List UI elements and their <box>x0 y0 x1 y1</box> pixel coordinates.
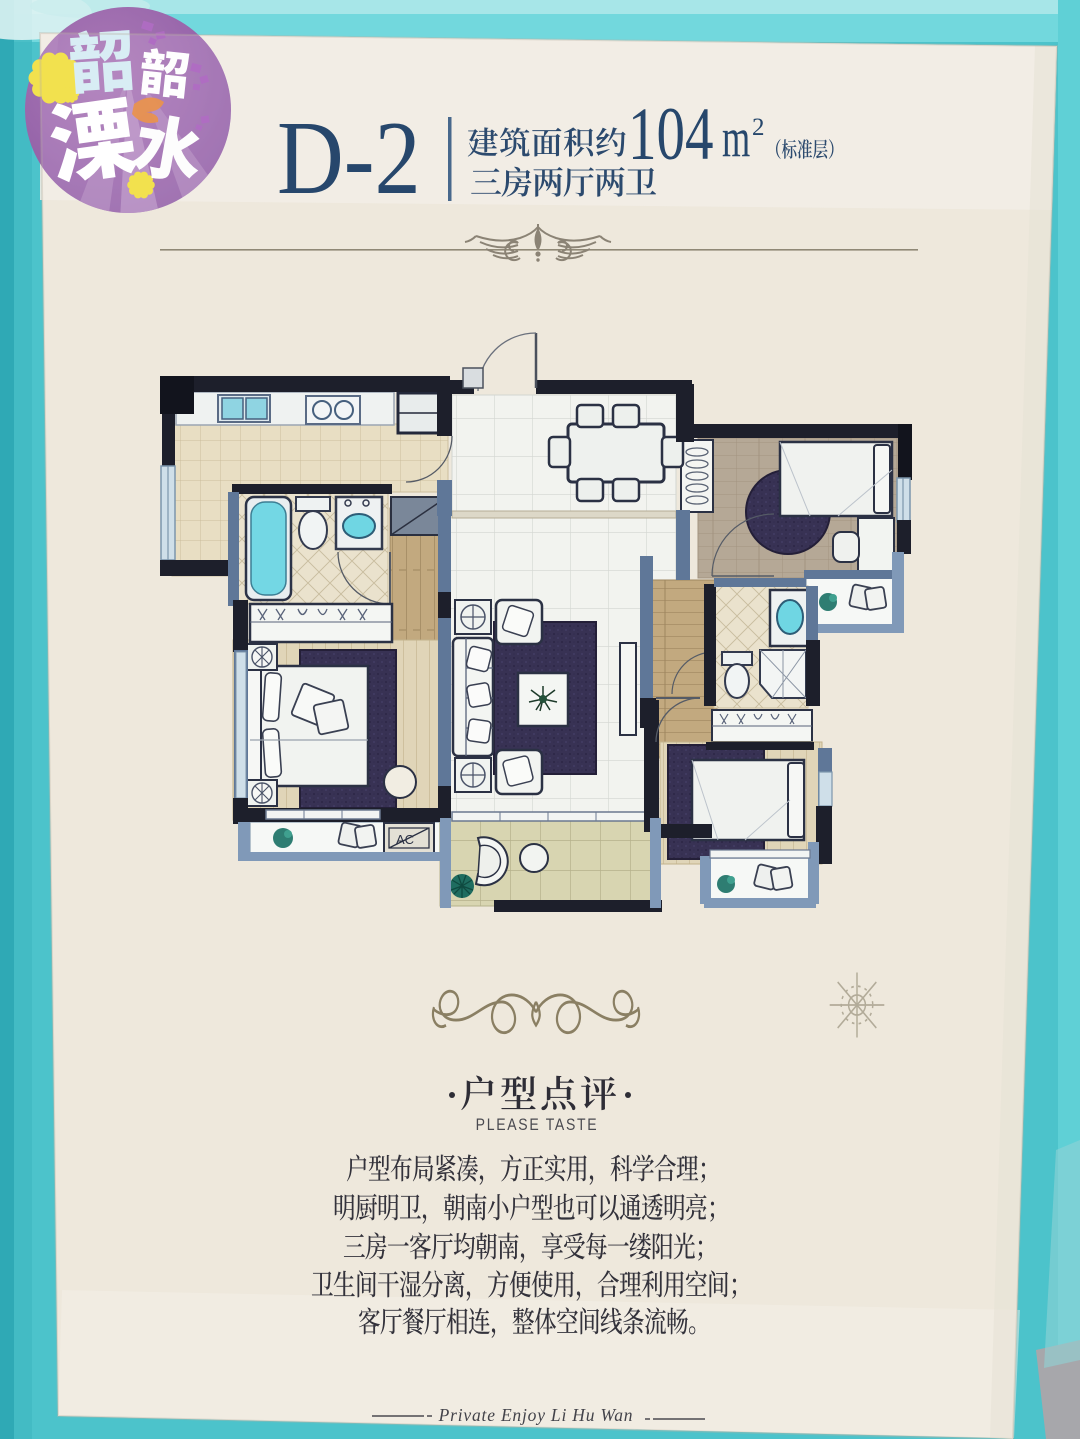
svg-text:104: 104 <box>628 94 714 176</box>
svg-text:m: m <box>722 108 750 169</box>
svg-text:AC: AC <box>396 832 414 847</box>
svg-text:Private Enjoy Li Hu Wan: Private Enjoy Li Hu Wan <box>438 1405 634 1425</box>
svg-text:2: 2 <box>752 114 765 141</box>
svg-text:PLEASE TASTE: PLEASE TASTE <box>476 1116 599 1134</box>
svg-text:D-2: D-2 <box>277 101 421 217</box>
